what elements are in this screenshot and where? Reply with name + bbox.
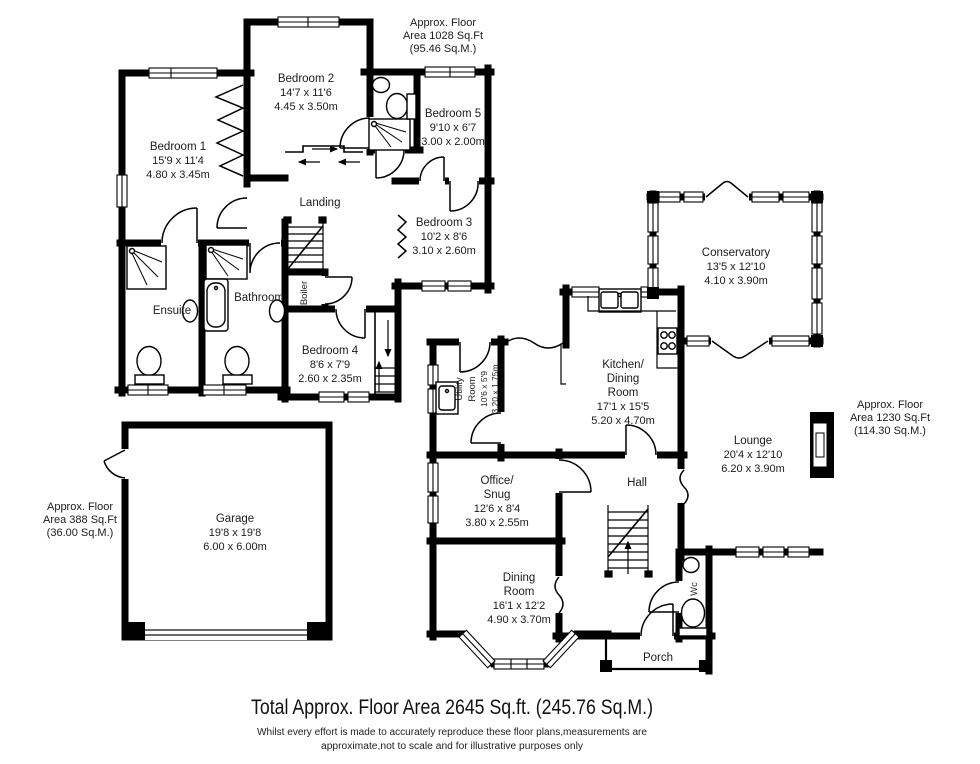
bathtub-icon [204,279,228,331]
hall-name: Hall [627,477,647,489]
window-icon [117,175,127,207]
window-icon [203,385,246,395]
kitchen-dims-imperial: 17'1 x 15'5 [597,401,650,413]
kitchen-sink-icon [599,289,641,312]
utility-name-line2: Room [467,376,478,401]
window-icon [428,496,438,523]
first-floor-area-line1: Approx. Floor [410,17,476,29]
bedroom2-dims-metric: 4.45 x 3.50m [274,101,338,113]
bedroom2-name: Bedroom 2 [278,73,334,85]
bedroom5-name: Bedroom 5 [425,108,481,120]
toilet-icon [679,599,707,636]
window-icon [428,463,438,492]
garage-area-line1: Approx. Floor [47,501,113,513]
window-icon [319,392,344,402]
lounge-dims-imperial: 20'4 x 12'10 [724,449,783,461]
window-icon [648,236,658,264]
dining-name-line1: Dining [503,572,536,584]
window-icon [425,67,475,77]
bedroom1-name: Bedroom 1 [150,141,206,153]
kitchen-name-line2: Dining [607,373,640,385]
bedroom4-name: Bedroom 4 [302,345,359,357]
sink-icon [683,558,699,573]
window-icon [348,392,369,402]
bathroom-name: Bathroom [234,292,284,304]
window-icon [812,236,822,264]
window-icon [648,268,658,289]
window-icon [278,17,339,27]
lounge-name: Lounge [734,435,772,447]
disclaimer-line1: Whilst every effort is made to accuratel… [257,727,647,738]
window-icon [448,281,471,291]
shower-icon [206,245,247,279]
window-icon [772,336,809,346]
first-floor-area-line3: (95.46 Sq.M.) [410,43,477,55]
garage-area-line3: (36.00 Sq.M.) [47,527,114,539]
bedroom4-dims-metric: 2.60 x 2.35m [298,373,362,385]
boiler-name: Boiler [299,281,310,305]
window-icon [659,192,680,202]
window-icon [149,68,217,78]
window-icon [422,281,445,291]
window-icon [752,192,779,202]
window-icon [687,336,709,346]
conservatory-dims-imperial: 13'5 x 12'10 [707,261,766,273]
window-icon [572,287,599,297]
bedroom5-dims-imperial: 9'10 x 6'7 [430,122,476,134]
kitchen-dims-metric: 5.20 x 4.70m [591,415,655,427]
bedroom2-dims-imperial: 14'7 x 11'6 [280,87,332,99]
office-name-line2: Snug [484,489,511,501]
ensuite-name: Ensuite [153,305,191,317]
ground-floor-area-line3: (114.30 Sq.M.) [854,425,926,437]
landing-name: Landing [300,197,341,209]
bedroom3-dims-imperial: 10'2 x 8'6 [421,231,467,243]
conservatory-name: Conservatory [702,247,771,259]
office-dims-imperial: 12'6 x 8'4 [474,503,520,515]
ground-floor-area-line2: Area 1230 Sq.Ft [850,412,930,424]
utility-dims-metric: 3.20 x 1.75m [490,364,500,413]
window-icon [788,547,809,557]
window-icon [684,192,703,202]
hob-icon [658,328,677,354]
dining-name-line2: Room [504,586,535,598]
total-area-text: Total Approx. Floor Area 2645 Sq.ft. (24… [251,696,653,719]
shower-icon [127,246,166,289]
bedroom1-dims-imperial: 15'9 x 11'4 [152,155,204,167]
kitchen-name-line1: Kitchen/ [602,359,644,371]
kitchen-name-line3: Room [608,387,639,399]
first-floor-area-line2: Area 1028 Sq.Ft [403,30,483,42]
window-icon [648,203,658,232]
window-icon [783,192,809,202]
conservatory-dims-metric: 4.10 x 3.90m [704,275,768,287]
wc-name: Wc [689,582,700,596]
bedroom5-dims-metric: 3.00 x 2.00m [421,136,485,148]
floor-plan-svg: Bedroom 1 15'9 x 11'4 4.80 x 3.45m Bedro… [0,0,980,764]
shower-icon [369,119,410,150]
window-icon [812,268,822,299]
garage-area-line2: Area 388 Sq.Ft [43,514,117,526]
dining-dims-imperial: 16'1 x 12'2 [493,600,546,612]
window-icon [763,547,784,557]
bay-window-icon [494,659,544,669]
floor-plan-page: Bedroom 1 15'9 x 11'4 4.80 x 3.45m Bedro… [0,0,980,764]
dining-dims-metric: 4.90 x 3.70m [487,614,551,626]
fireplace [810,412,834,478]
bedroom4-dims-imperial: 8'6 x 7'9 [310,359,350,371]
window-icon [812,303,822,334]
garage-name: Garage [216,513,254,525]
window-icon [736,547,759,557]
lounge-dims-metric: 6.20 x 3.90m [721,463,785,475]
sink-icon [373,78,390,93]
toilet-icon [387,94,417,120]
window-icon [812,203,822,232]
office-name-line1: Office/ [480,475,514,487]
ground-floor-area-line1: Approx. Floor [857,399,923,411]
bedroom1-dims-metric: 4.80 x 3.45m [146,169,210,181]
disclaimer-line2: approximate,not to scale and for illustr… [321,741,583,752]
bedroom3-name: Bedroom 3 [416,217,472,229]
garage-dims-imperial: 19'8 x 19'8 [209,527,262,539]
utility-name-line1: Utility [454,377,465,400]
window-icon [128,385,168,395]
garage-dims-metric: 6.00 x 6.00m [203,541,267,553]
bedroom3-dims-metric: 3.10 x 2.60m [412,245,476,257]
porch-name: Porch [643,652,673,664]
utility-dims-imperial: 10'6 x 5'9 [479,371,489,407]
office-dims-metric: 3.80 x 2.55m [465,517,529,529]
